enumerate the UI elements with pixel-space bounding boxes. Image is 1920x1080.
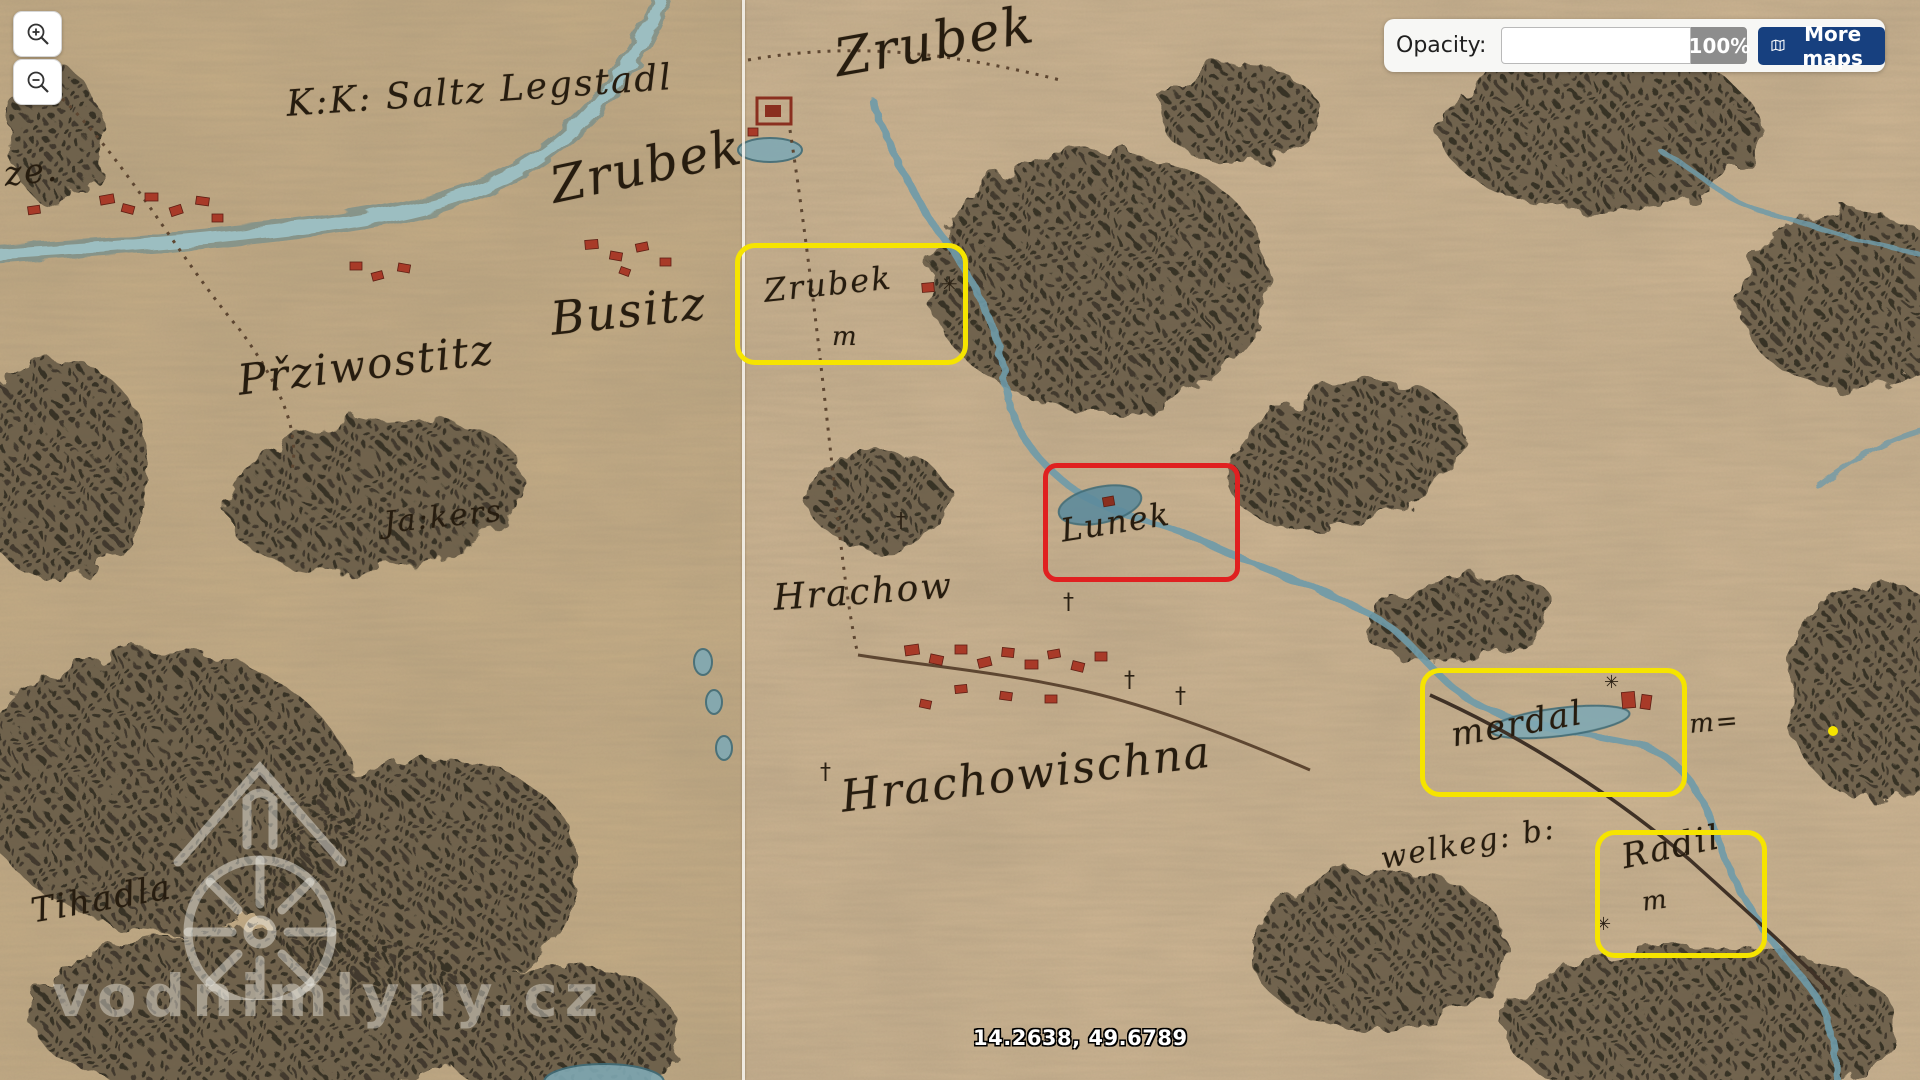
opacity-slider[interactable]	[1501, 27, 1691, 64]
map-viewer: ze.K:K: Saltz LegstadlZrubekBusitzPřziwo…	[0, 0, 1920, 1080]
zoom-out-button[interactable]	[13, 59, 62, 105]
map-artwork	[0, 0, 1920, 1080]
map-sheet-seam	[742, 0, 745, 1080]
coordinates-readout: 14.2638, 49.6789	[973, 1026, 1188, 1050]
magnifier-plus-icon	[25, 21, 51, 47]
zoom-in-button[interactable]	[13, 11, 62, 57]
more-maps-button[interactable]: More maps	[1758, 27, 1885, 65]
opacity-label: Opacity:	[1396, 33, 1486, 58]
opacity-value-badge: 100%	[1691, 27, 1747, 64]
opacity-panel: Opacity: 100% More maps	[1384, 19, 1885, 72]
more-maps-label: More maps	[1793, 22, 1872, 70]
magnifier-minus-icon	[25, 69, 51, 95]
map-canvas[interactable]	[0, 0, 1920, 1080]
opacity-control: 100%	[1501, 27, 1747, 64]
map-icon	[1771, 36, 1785, 55]
